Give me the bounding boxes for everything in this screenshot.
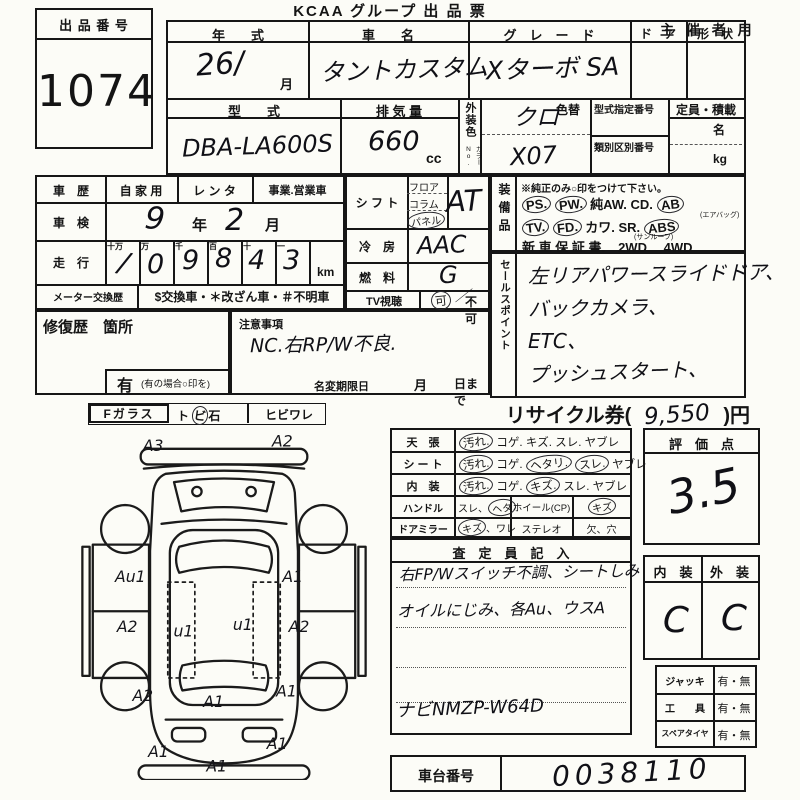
score-box: 評 価 点 3.5 [643, 428, 760, 545]
damage-code-rear-bumper-right: A1 [266, 735, 288, 753]
equipment-label: 装備品 [496, 183, 513, 237]
use-commercial: 事業.営業車 [252, 182, 343, 198]
shift-opt-floor: フロア [409, 179, 439, 194]
assessor-line-2: オイルにじみ、各Au、ウスA [397, 600, 605, 620]
tools-value: 有・無 [713, 700, 755, 716]
damage-code-rear-bumper-left: A1 [147, 743, 169, 761]
interior-label: 内 装 [392, 478, 454, 494]
damage-code-rear-center: A1 [202, 693, 224, 711]
fuel-value: G [439, 263, 458, 287]
color-value: クロ [513, 107, 559, 130]
repair-box: 修復歴 箇所 有 (有の場合○印を) [35, 310, 230, 395]
rear-roof-window [180, 661, 269, 691]
roof-panel [170, 530, 278, 705]
controls-table: シ フ ト フロア コラム パネル AT 冷 房 AAC 燃 料 G TV視聴 … [345, 175, 490, 310]
kg-suffix: kg [713, 152, 727, 166]
damage-code-rear-right-fender: A1 [275, 683, 297, 701]
interior-grade-value: C [662, 602, 690, 640]
model-value: DBA-LA600S [182, 131, 334, 160]
inspection-month: 2 [225, 206, 244, 236]
ac-label: 冷 房 [347, 238, 407, 255]
odo-digit-3: 8 [215, 245, 232, 272]
persons-suffix: 名 [713, 121, 725, 138]
sales-point-1: 左リアパワースライドドア、 [528, 262, 785, 286]
front-roof-window [176, 540, 272, 572]
caution-label: 注意事項 [239, 316, 283, 332]
shift-label: シ フ ト [347, 194, 407, 211]
assessor-box: 査 定 員 記 入 右FP/Wスイッチ不調、シートしみ オイルにじみ、各Au、ウ… [390, 538, 632, 735]
windshield [174, 479, 274, 512]
stereo-items: 欠、穴 [573, 521, 630, 536]
odo-digit-1: 0 [147, 251, 164, 278]
stereo-label: ステレオ [511, 521, 572, 536]
seat-items: 汚れ. コゲ. ヘタリ. スレ. ヤブレ [459, 455, 647, 473]
jack-value: 有・無 [713, 673, 755, 689]
wheel-items: キズ [573, 498, 630, 515]
crack-label: ヒビワレ [254, 406, 324, 423]
use-rental: レ ン タ [177, 182, 252, 199]
grade-value: Xターボ SA [486, 54, 620, 84]
repair-has-label: 有 [117, 372, 133, 396]
inspection-month-unit: 月 [265, 214, 280, 235]
name-label: 車 名 [308, 25, 468, 44]
headliner-label: 天 張 [392, 434, 454, 450]
tv-label: TV視聴 [349, 293, 419, 309]
stone-chip-label: ト ビ石 [177, 406, 220, 425]
headliner-items: 汚れ. コゲ. キズ. スレ. ヤブレ [459, 433, 619, 451]
odo-digit-4: 4 [248, 247, 265, 274]
grade-label: グ レ ー ド [468, 25, 630, 44]
form-title: KCAA グループ 出 品 票 [230, 0, 550, 21]
odometer-label: 走 行 [37, 254, 105, 271]
displacement-label: 排 気 量 [340, 101, 458, 120]
damage-code-right-door-lower: A2 [288, 618, 310, 636]
recycle-prefix: リサイクル券( [506, 399, 632, 428]
vehicle-table: 年 式 車 名 グ レ ー ド ド ア 形 状 26/ 月 タントカスタム Xタ… [166, 20, 746, 175]
score-label: 評 価 点 [645, 434, 758, 453]
model-label: 型 式 [168, 101, 340, 120]
mirror-items: キズ、ワレ [458, 519, 516, 536]
damage-code-rear-left-fender: A2 [131, 687, 153, 705]
odo-digit-2: 9 [182, 247, 199, 274]
wheel-label: ホイール(CP) [511, 500, 572, 514]
damage-code-inner-right: u1 [233, 616, 253, 634]
equipment-box: 装備品 ※純正のみ○印をつけて下さい。 PS. PW. 純AW. CD. AB … [490, 175, 746, 252]
month-suffix: 月 [280, 74, 293, 93]
equipment-row1: PS. PW. 純AW. CD. AB [522, 194, 683, 213]
recycle-suffix: )円 [723, 399, 750, 428]
inspection-year-unit: 年 [192, 214, 207, 235]
inspection-year: 9 [143, 203, 166, 236]
repair-label: 修復歴 箇所 [43, 316, 133, 337]
damage-code-left-door-lower: A2 [116, 618, 138, 636]
car-damage-diagram: A3 A2 Au1 A1 A2 A2 u1 u1 A2 A1 A1 A1 A1 … [78, 428, 370, 780]
use-private: 自 家 用 [105, 182, 177, 199]
exterior-grade-label: 外 装 [701, 562, 758, 581]
repair-has-note: (有の場合○印を) [141, 376, 210, 390]
caution-box: 注意事項 NC.右RP/W不良. 名変期限日 月 日まで [230, 310, 490, 395]
damage-code-front-right: A2 [271, 433, 293, 451]
fglass-label: Fガラス [89, 404, 169, 423]
shift-opt-column: コラム [409, 196, 439, 211]
km-unit: km [317, 265, 334, 279]
recycle-fee-line: リサイクル券( 9,550 )円 [468, 399, 750, 428]
use-label: 車 歴 [37, 182, 105, 199]
damage-code-right-door-upper: A1 [281, 568, 303, 586]
damage-code-left-door-upper: Au1 [114, 568, 146, 586]
airbag-note: (エアバッグ) [700, 210, 739, 220]
type-cert-label: 型式指定番号 [594, 101, 654, 116]
color-no-value: X07 [509, 143, 557, 169]
assessor-line-1: 右FP/Wスイッチ不調、シートしみ [399, 564, 640, 584]
shape-label: 形 状 [686, 25, 744, 42]
lot-number: 1074 [37, 66, 151, 117]
year-label: 年 式 [168, 25, 308, 44]
chassis-value: 0038110 [551, 755, 712, 791]
grades-box: 内 装 外 装 C C [643, 555, 760, 660]
sales-point-4: プッシュスタート、 [528, 359, 708, 385]
inspection-label: 車 検 [37, 214, 105, 231]
sales-point-2: バックカメラ、 [528, 297, 668, 319]
recycle-amount: 9,550 [631, 401, 724, 430]
name-value: タントカスタム [320, 55, 489, 85]
damage-code-inner-left: u1 [173, 622, 193, 640]
meter-label: メーター交換歴 [39, 289, 137, 304]
auction-sheet: KCAA グループ 出 品 票 主 催 者 用 出 品 番 号 1074 年 式… [0, 0, 800, 800]
tv-ng: 不可 [465, 293, 488, 327]
meter-codes: $交換車・＊改ざん車・＃不明車 [141, 288, 343, 305]
shift-value: AT [445, 186, 482, 217]
capacity-label: 定員・積載 [668, 101, 744, 118]
fglass-strip: Fガラス ト ビ石 ヒビワレ [88, 403, 326, 425]
damage-code-front-left: A3 [142, 437, 164, 455]
score-value: 3.5 [663, 461, 744, 521]
mirror-label: ドアミラー [392, 521, 454, 536]
assessor-note: ナビNMZP-W64D [396, 697, 544, 720]
interior-items: 汚れ. コゲ. キズ. スレ. ヤブレ [459, 477, 627, 495]
ext-color-label: 外装色 [462, 102, 478, 138]
wheel-rear-right [299, 662, 347, 710]
equipment-note: ※純正のみ○印をつけて下さい。 [521, 180, 667, 195]
handle-items: スレ、ヘタ [458, 499, 516, 516]
shift-opt-panel: パネル [407, 212, 445, 229]
name-change-month: 月 [414, 375, 427, 394]
front-bumper [141, 449, 308, 465]
handle-label: ハンドル [392, 500, 454, 515]
class-number-label: 類別区別番号 [594, 139, 654, 154]
displacement-value: 660 [368, 128, 420, 155]
spare-tire-value: 有・無 [713, 727, 755, 743]
name-change-label: 名変期限日 [314, 378, 369, 394]
tools-label: 工 具 [657, 700, 713, 715]
odo-digit-5: 3 [283, 247, 300, 274]
cc-unit: cc [426, 150, 442, 166]
accessories-table: ジャッキ 有・無 工 具 有・無 スペアタイヤ 有・無 [655, 665, 757, 748]
damage-code-rear-bumper-center: A1 [205, 758, 227, 776]
lot-number-label: 出 品 番 号 [37, 10, 151, 40]
fuel-label: 燃 料 [347, 269, 407, 286]
door-label: ド ア [630, 25, 686, 42]
assessor-header: 査 定 員 記 入 [392, 543, 630, 562]
chassis-row: 車台番号 0038110 [390, 755, 746, 792]
year-value: 26/ [195, 48, 245, 81]
seat-label: シ ー ト [392, 456, 454, 472]
jack-label: ジャッキ [657, 673, 713, 688]
condition-table: 天 張 汚れ. コゲ. キズ. スレ. ヤブレ シ ー ト 汚れ. コゲ. ヘタ… [390, 428, 632, 538]
sales-points-box: セールスポイント 左リアパワースライドドア、 バックカメラ、 ETC、 プッシュ… [490, 252, 746, 398]
sales-point-3: ETC、 [528, 331, 587, 351]
spare-tire-label: スペアタイヤ [657, 728, 713, 739]
caution-value: NC.右RP/W不良. [250, 335, 397, 357]
ac-value: AAC [417, 232, 467, 258]
odo-digit-0: / [116, 248, 131, 277]
color-no-label: カラーNo. [465, 146, 482, 173]
interior-grade-label: 内 装 [645, 562, 701, 581]
chassis-label: 車台番号 [392, 766, 500, 786]
sales-points-label: セールスポイント [498, 259, 513, 351]
history-table: 車 歴 自 家 用 レ ン タ 事業.営業車 車 検 9 年 2 月 走 行 十… [35, 175, 345, 310]
color-change-label: 色替 [556, 101, 580, 118]
lot-number-box: 出 品 番 号 1074 [35, 8, 153, 149]
tv-ok: 可 [431, 291, 451, 310]
exterior-grade-value: C [720, 600, 748, 638]
